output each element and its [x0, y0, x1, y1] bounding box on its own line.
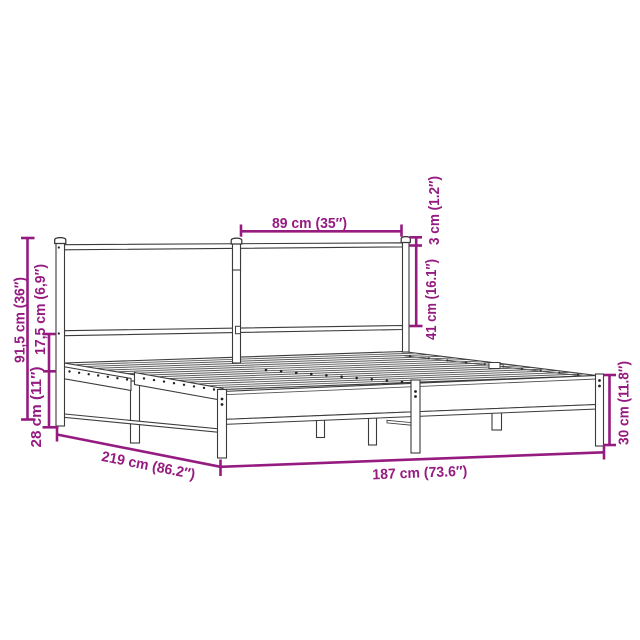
- svg-text:89 cm (35″): 89 cm (35″): [272, 215, 347, 232]
- svg-text:91,5 cm (36″): 91,5 cm (36″): [13, 277, 29, 363]
- svg-text:41 cm (16.1″): 41 cm (16.1″): [424, 259, 440, 340]
- svg-text:30 cm (11.8″): 30 cm (11.8″): [617, 361, 633, 445]
- svg-text:3 cm (1.2″): 3 cm (1.2″): [427, 176, 443, 245]
- svg-text:17,5 cm (6,9″): 17,5 cm (6,9″): [33, 264, 49, 355]
- svg-text:28 cm (11″): 28 cm (11″): [29, 366, 45, 447]
